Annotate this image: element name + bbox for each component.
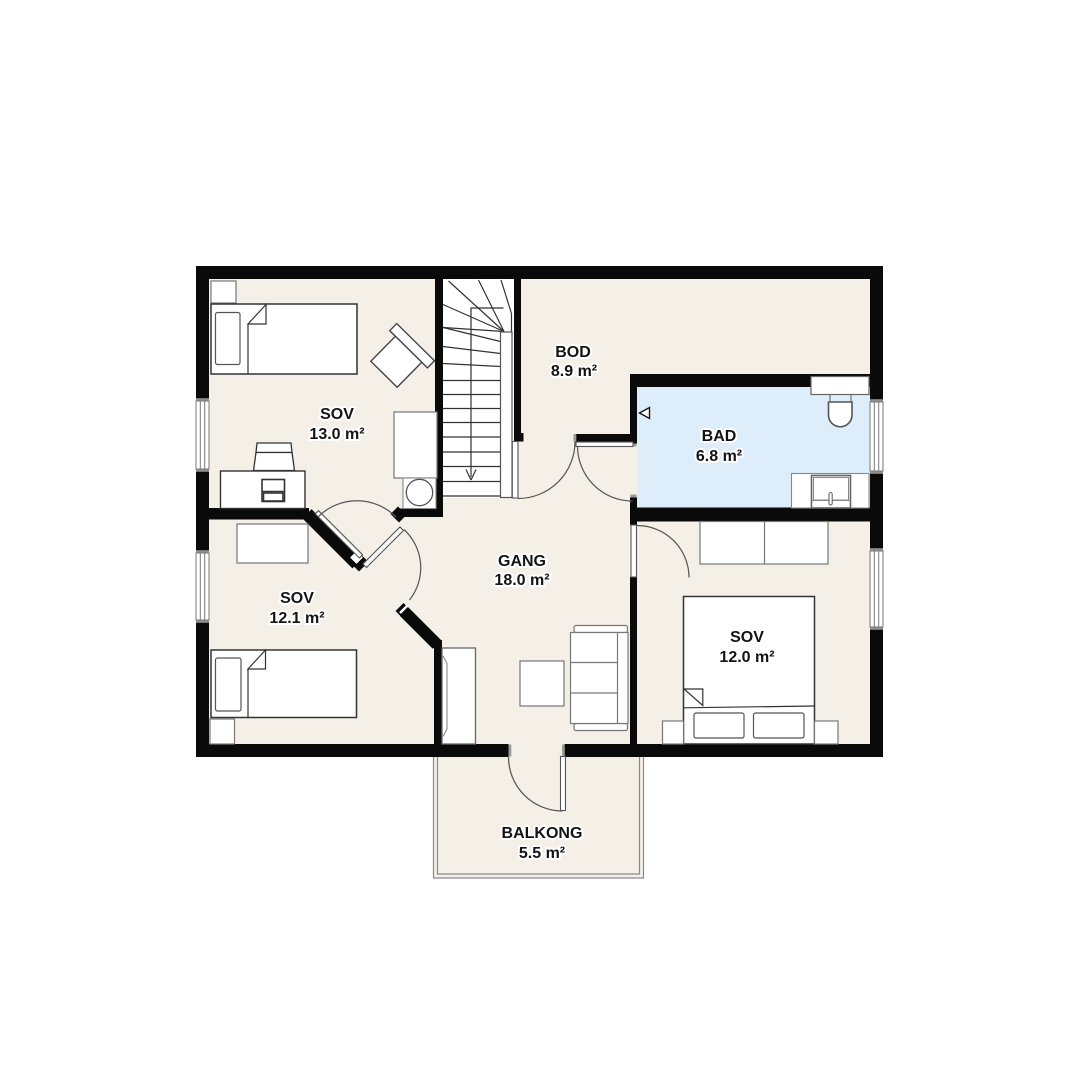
svg-text:13.0 m²: 13.0 m² (309, 426, 364, 443)
svg-text:SOV: SOV (280, 590, 314, 607)
svg-text:SOV: SOV (320, 406, 354, 423)
svg-text:8.9 m²: 8.9 m² (551, 363, 597, 380)
svg-text:5.5 m²: 5.5 m² (519, 845, 565, 862)
svg-text:SOV: SOV (730, 629, 764, 646)
svg-text:12.0 m²: 12.0 m² (719, 649, 774, 666)
svg-text:6.8 m²: 6.8 m² (696, 448, 742, 465)
svg-text:BAD: BAD (702, 428, 737, 445)
svg-text:BOD: BOD (555, 344, 591, 361)
svg-text:GANG: GANG (498, 553, 546, 570)
svg-text:12.1 m²: 12.1 m² (269, 610, 324, 627)
svg-text:BALKONG: BALKONG (502, 825, 583, 842)
svg-text:18.0 m²: 18.0 m² (494, 572, 549, 589)
